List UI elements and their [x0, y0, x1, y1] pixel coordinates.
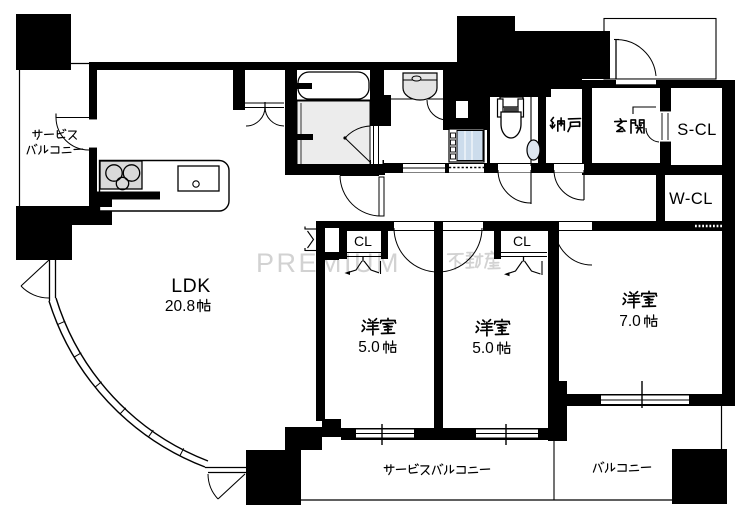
svg-text:5.0: 5.0: [472, 340, 494, 357]
svg-text:W-CL: W-CL: [669, 190, 713, 208]
svg-text:7.0: 7.0: [619, 313, 641, 330]
svg-text:5.0: 5.0: [358, 339, 380, 356]
svg-text:LDK: LDK: [171, 275, 210, 297]
svg-text:CL: CL: [513, 233, 531, 249]
svg-text:20.8: 20.8: [165, 298, 195, 315]
svg-text:S-CL: S-CL: [677, 121, 717, 139]
svg-text:CL: CL: [354, 233, 372, 249]
